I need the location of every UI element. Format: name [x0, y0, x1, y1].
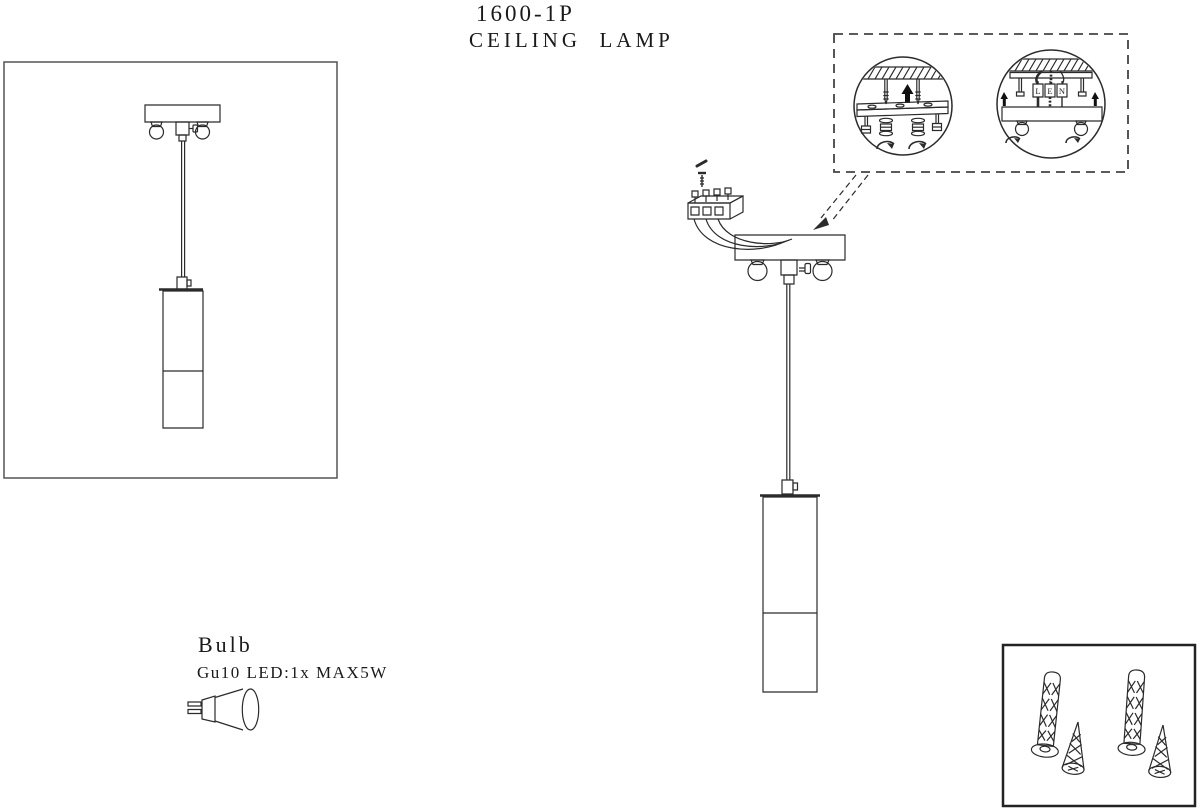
detail-callout: L E N: [813, 34, 1128, 230]
terminal-block-3d: [688, 188, 743, 219]
tapping-screw-icon: [1148, 724, 1174, 778]
hardware-box-border: [1003, 645, 1195, 806]
callout-leader-arrow: [813, 175, 868, 230]
overview-panel-border: [4, 62, 337, 478]
shade-connector: [782, 480, 798, 494]
canopy-stem: [176, 122, 198, 141]
instruction-sheet: 1600-1P CEILING LAMP Bulb Gu10 LED:1x MA…: [0, 0, 1200, 809]
decorative-bulb-icon: [1016, 121, 1088, 136]
hardware-box: [1003, 645, 1195, 806]
mounting-bracket: [857, 101, 948, 117]
cylinder-shade: [760, 496, 820, 693]
up-arrow-icon: [902, 84, 914, 103]
hatched-ceiling: [1002, 59, 1100, 71]
terminal-label-l: L: [1035, 86, 1040, 96]
mounting-screw-icon: [883, 79, 920, 104]
canopy-wires: [1038, 97, 1062, 107]
supply-wires: [694, 219, 792, 249]
wall-plug-icon: [1118, 669, 1151, 756]
detail-step2-circle: L E N: [997, 50, 1105, 158]
pendant-lamp-overview: [145, 105, 220, 428]
washer-nut-icon: [880, 118, 925, 135]
tapping-screw-icon: [1062, 721, 1089, 776]
screw-icon: [697, 161, 706, 187]
shade-connector: [177, 277, 191, 290]
ceiling-canopy: [145, 105, 220, 122]
decorative-bulb-icon: [748, 260, 832, 281]
rotate-clockwise-arrow-icon: [877, 142, 926, 149]
drawing-canvas: L E N: [0, 0, 1200, 809]
overview-panel: [4, 62, 337, 478]
installation-diagram: [688, 161, 845, 692]
gu10-bulb-icon: [188, 689, 259, 730]
detail-step1-circle: [854, 57, 952, 155]
ceiling-canopy: [1002, 107, 1102, 121]
pendant-rod: [182, 141, 185, 277]
ceiling-canopy: [735, 235, 845, 260]
wall-plug-icon: [1031, 671, 1067, 759]
cylinder-shade: [159, 290, 203, 429]
terminal-label-n: N: [1059, 86, 1065, 96]
pendant-rod: [787, 284, 790, 480]
canopy-stem: [781, 260, 811, 284]
rotate-clockwise-arrow-icon: [1006, 137, 1080, 143]
terminal-label-e: E: [1047, 86, 1052, 96]
